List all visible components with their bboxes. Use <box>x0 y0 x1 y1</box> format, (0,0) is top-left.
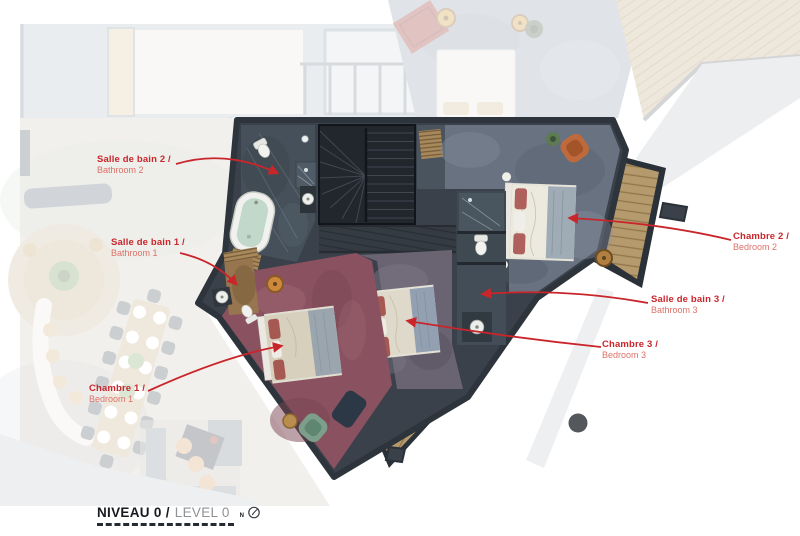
side-table-icon <box>283 414 297 428</box>
callout-bathroom-2-fr: Salle de bain 2 / <box>97 154 171 165</box>
callout-bathroom-3: Salle de bain 3 / Bathroom 3 <box>651 294 725 316</box>
callout-bathroom-1: Salle de bain 1 / Bathroom 1 <box>111 237 185 259</box>
bed-bedroom-1-icon <box>257 306 342 385</box>
pouf-icon <box>267 276 283 292</box>
callout-bathroom-2: Salle de bain 2 / Bathroom 2 <box>97 154 171 176</box>
callout-bathroom-2-en: Bathroom 2 <box>97 165 171 176</box>
callout-bedroom-3-en: Bedroom 3 <box>602 350 658 361</box>
callout-bedroom-3-fr: Chambre 3 / <box>602 339 658 350</box>
room-bathroom-3 <box>457 191 506 345</box>
pouf-icon <box>596 250 612 266</box>
toilet-icon <box>475 235 488 255</box>
plant-icon <box>546 132 560 146</box>
shower-icon <box>459 193 504 231</box>
callout-bathroom-1-fr: Salle de bain 1 / <box>111 237 185 248</box>
callout-bathroom-1-en: Bathroom 1 <box>111 248 185 259</box>
callout-bedroom-2-en: Bedroom 2 <box>733 242 789 253</box>
callout-bathroom-3-en: Bathroom 3 <box>651 305 725 316</box>
compass: N <box>240 505 261 520</box>
hallway <box>319 226 456 252</box>
sink-icon <box>300 186 316 213</box>
callout-bedroom-3: Chambre 3 / Bedroom 3 <box>602 339 658 361</box>
compass-north-label: N <box>240 513 244 519</box>
bed-bedroom-2-icon <box>499 172 577 272</box>
callout-bathroom-3-fr: Salle de bain 3 / <box>651 294 725 305</box>
sink-icon <box>462 312 492 342</box>
callout-bedroom-1-fr: Chambre 1 / <box>89 383 145 394</box>
compass-icon <box>245 505 261 520</box>
level-title: NIVEAU 0 / LEVEL 0 N <box>97 504 261 526</box>
level-title-en: LEVEL 0 <box>175 505 230 520</box>
callout-bedroom-2: Chambre 2 / Bedroom 2 <box>733 231 789 253</box>
callout-bedroom-1: Chambre 1 / Bedroom 1 <box>89 383 145 405</box>
level-title-fr: NIVEAU 0 / <box>97 505 170 520</box>
dashed-underline <box>97 523 234 526</box>
callout-bedroom-2-fr: Chambre 2 / <box>733 231 789 242</box>
pendant-light-icon <box>302 136 309 143</box>
shower-icon <box>296 162 316 188</box>
floor-plan-graphic <box>0 0 800 536</box>
column-dot <box>569 414 588 433</box>
callout-bedroom-1-en: Bedroom 1 <box>89 394 145 405</box>
sink-icon <box>212 287 233 308</box>
floor-plan-page: Salle de bain 2 / Bathroom 2 Salle de ba… <box>0 0 800 536</box>
stairs <box>319 125 415 224</box>
